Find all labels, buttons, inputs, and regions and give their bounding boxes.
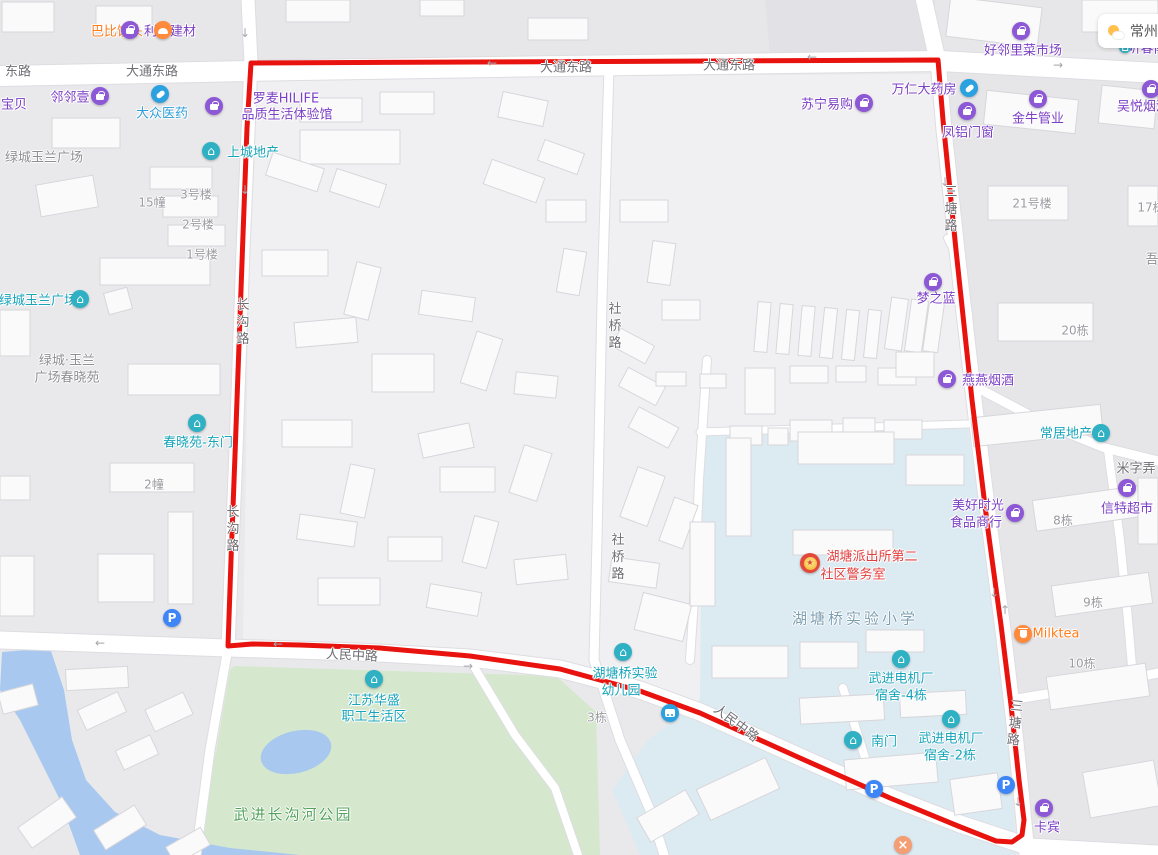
- chunxiao-east-gate-icon[interactable]: ⌂: [188, 414, 206, 432]
- building: [768, 428, 788, 445]
- bun-glyph: [158, 28, 168, 34]
- poi-label[interactable]: 职工生活区: [341, 706, 406, 725]
- south-gate-icon[interactable]: ⌂: [844, 731, 862, 749]
- building-label: 1号楼: [186, 246, 218, 263]
- building-label: 15幢: [138, 194, 165, 211]
- suning-store-icon[interactable]: [855, 94, 873, 112]
- building-label: 3号楼: [180, 186, 212, 203]
- luomai-hilife-icon[interactable]: [205, 97, 223, 115]
- road-label: 米字弄: [1116, 458, 1155, 477]
- building: [836, 366, 866, 382]
- building: [0, 556, 34, 616]
- home-glyph: ⌂: [193, 417, 201, 429]
- building: [799, 694, 884, 724]
- building: [514, 554, 568, 584]
- mengzhilan-icon[interactable]: [924, 273, 942, 291]
- police-station-icon[interactable]: ★: [800, 553, 820, 573]
- fenglv-doors-icon[interactable]: [958, 102, 976, 120]
- bag-glyph: [96, 94, 104, 100]
- area-label: 广场春晓苑: [34, 367, 99, 386]
- haolinli-market-icon[interactable]: [1012, 22, 1030, 40]
- road-label: 大通东路: [703, 55, 755, 74]
- dorm-4-icon[interactable]: ⌂: [892, 650, 910, 668]
- babi-bun-shop-icon[interactable]: [154, 21, 172, 39]
- building: [420, 0, 464, 16]
- meihao-food-store-icon[interactable]: [1006, 504, 1024, 522]
- weather-widget[interactable]: 常州: [1098, 14, 1158, 48]
- building-label: 3栋: [587, 709, 607, 726]
- poi-label[interactable]: 宿舍-2栋: [924, 745, 976, 764]
- building: [318, 578, 380, 605]
- bag-glyph: [1034, 97, 1042, 103]
- building-label: 21号楼: [1012, 195, 1051, 212]
- poi-label[interactable]: 湖塘派出所第二: [826, 546, 917, 565]
- building: [0, 476, 30, 500]
- road-label: 长沟路: [232, 298, 251, 349]
- poi-label[interactable]: 燕燕烟酒: [962, 370, 1014, 389]
- yanyan-tobacco-icon[interactable]: [938, 370, 956, 388]
- building: [800, 642, 858, 668]
- building: [52, 118, 120, 148]
- building: [380, 92, 434, 114]
- dorm-2-icon[interactable]: ⌂: [942, 710, 960, 728]
- poi-label[interactable]: 好邻里菜市场: [984, 40, 1062, 59]
- milktea-shop-icon[interactable]: [1014, 625, 1032, 643]
- kindergarten-icon[interactable]: ⌂: [614, 643, 632, 661]
- pill-glyph: [964, 83, 974, 92]
- road-label: 人民中路: [326, 643, 379, 665]
- poi-label[interactable]: 卡宾: [1034, 817, 1060, 836]
- poi-label[interactable]: Milktea: [1032, 627, 1079, 642]
- building-label: 2幢: [144, 476, 164, 493]
- kabin-store-icon[interactable]: [1035, 799, 1053, 817]
- building: [168, 512, 193, 604]
- poi-label[interactable]: 宿舍-4栋: [875, 685, 927, 704]
- bag-glyph: [1011, 511, 1019, 517]
- poi-label[interactable]: 大众医药: [136, 103, 188, 122]
- poi-label[interactable]: 南门: [871, 731, 897, 750]
- parking-2-icon[interactable]: P: [865, 780, 883, 798]
- building-label: 20栋: [1061, 322, 1088, 339]
- building: [65, 666, 128, 690]
- building: [528, 18, 588, 40]
- bus-glyph: [665, 709, 675, 717]
- building: [726, 438, 751, 536]
- weather-city: 常州: [1130, 21, 1158, 41]
- building: [866, 630, 924, 652]
- building: [282, 420, 352, 447]
- poi-label[interactable]: 吴悦烟酒: [1117, 96, 1158, 115]
- building: [620, 200, 668, 222]
- parking-3-icon[interactable]: P: [997, 776, 1015, 794]
- changju-realty-icon[interactable]: ⌂: [1092, 424, 1110, 442]
- building: [2, 2, 54, 32]
- bus-stop-icon[interactable]: [661, 704, 679, 722]
- building-label: 10栋: [1068, 655, 1095, 672]
- bag-glyph: [210, 104, 218, 110]
- bag-glyph: [1147, 87, 1155, 93]
- huasheng-residential-icon[interactable]: ⌂: [365, 670, 383, 688]
- area-label: 绿城玉兰广场: [5, 147, 83, 166]
- building: [104, 287, 133, 314]
- road-label: 长沟路: [222, 505, 241, 556]
- building: [790, 366, 828, 383]
- poi-label[interactable]: 春晓苑-东门: [163, 432, 233, 451]
- building: [115, 735, 158, 770]
- wuyue-tobacco-icon[interactable]: [1142, 80, 1158, 98]
- police-glyph: ★: [804, 557, 817, 570]
- bag-glyph: [1123, 486, 1131, 492]
- parking-1-icon[interactable]: P: [163, 609, 181, 627]
- poi-label[interactable]: 上城地产: [227, 142, 279, 161]
- building: [546, 200, 586, 222]
- road-label: 大通东路: [126, 61, 178, 80]
- building: [700, 374, 726, 388]
- area-label: 吾: [1145, 249, 1158, 268]
- building-label: 2号楼: [182, 216, 214, 233]
- building: [440, 467, 495, 492]
- home-glyph: ⌂: [76, 293, 84, 305]
- building: [128, 364, 220, 395]
- poi-label[interactable]: 邻邻壹: [50, 87, 89, 106]
- poi-label[interactable]: 幼儿园: [601, 680, 640, 699]
- close-glyph: ×: [898, 839, 909, 852]
- building: [656, 372, 686, 386]
- poi-label[interactable]: 绿城玉兰广场: [0, 290, 77, 309]
- home-glyph: ⌂: [1097, 427, 1105, 439]
- building-label: 8栋: [1053, 512, 1073, 529]
- map-canvas[interactable]: ←→←↓↓↓↓↑↓←→←东路大通东路大通东路大通东路人民中路人民中路长沟路长沟路…: [0, 0, 1158, 855]
- poi-label[interactable]: 宝贝: [1, 94, 27, 113]
- poi-label[interactable]: 苏宁易购: [801, 94, 853, 113]
- building: [514, 372, 558, 398]
- bag-glyph: [929, 280, 937, 286]
- block-slab: [765, 0, 935, 55]
- bag-glyph: [860, 101, 868, 107]
- building: [36, 175, 99, 217]
- bag-glyph: [943, 377, 951, 383]
- home-glyph: ⌂: [207, 145, 215, 157]
- cup-glyph: [1020, 630, 1027, 638]
- building: [896, 352, 934, 377]
- pill-glyph: [155, 89, 165, 98]
- building: [950, 773, 1003, 815]
- road-label: 三塘路: [940, 185, 959, 236]
- road-label: 大通东路: [540, 57, 592, 76]
- poi-label[interactable]: 万仁大药房: [891, 79, 956, 98]
- building: [906, 455, 964, 485]
- road-label: 社桥路: [607, 533, 626, 584]
- building: [798, 432, 894, 464]
- poi-label[interactable]: 品质生活体验馆: [241, 104, 332, 123]
- bag-glyph: [963, 109, 971, 115]
- closed-poi-icon[interactable]: ×: [894, 836, 912, 854]
- building: [18, 797, 77, 848]
- home-glyph: ⌂: [947, 713, 955, 725]
- building: [145, 692, 193, 732]
- building: [300, 130, 400, 164]
- building: [0, 310, 30, 356]
- building: [98, 554, 154, 602]
- park-label: 武进长沟河公园: [233, 804, 352, 825]
- building-label: 9栋: [1083, 594, 1103, 611]
- lilai-building-materials-icon[interactable]: [121, 21, 139, 39]
- poi-label[interactable]: 食品商行: [950, 512, 1002, 531]
- linlinyi-store-icon[interactable]: [91, 87, 109, 105]
- weather-sun-cloud-icon: [1108, 25, 1123, 38]
- building: [294, 317, 358, 347]
- wanren-pharmacy-icon[interactable]: [960, 79, 978, 97]
- poi-label[interactable]: 信特超市: [1101, 498, 1153, 517]
- building: [77, 692, 126, 731]
- building: [262, 250, 328, 276]
- road-label: 社桥路: [604, 302, 623, 353]
- dazhong-pharmacy-icon[interactable]: [151, 85, 169, 103]
- home-glyph: ⌂: [619, 646, 627, 658]
- shangcheng-realty-icon[interactable]: ⌂: [202, 142, 220, 160]
- building: [662, 300, 700, 320]
- home-glyph: ⌂: [849, 734, 857, 746]
- school-area-label: 湖塘桥实验小学: [792, 608, 918, 629]
- bag-glyph: [1040, 806, 1048, 812]
- bag-glyph: [1017, 29, 1025, 35]
- poi-label[interactable]: 常居地产: [1040, 423, 1092, 442]
- poi-label[interactable]: 社区警务室: [820, 564, 885, 583]
- building: [388, 537, 442, 561]
- bag-glyph: [126, 28, 134, 34]
- home-glyph: ⌂: [897, 653, 905, 665]
- lvcheng-yulan-plaza-icon[interactable]: ⌂: [71, 290, 89, 308]
- building: [745, 368, 775, 414]
- building: [690, 522, 715, 606]
- road-label: 东路: [5, 61, 31, 80]
- building-label: 17栋: [1137, 199, 1158, 216]
- building: [372, 354, 434, 392]
- xinte-supermarket-icon[interactable]: [1118, 479, 1136, 497]
- poi-label[interactable]: 金牛管业: [1012, 108, 1064, 127]
- home-glyph: ⌂: [370, 673, 378, 685]
- building: [286, 0, 350, 22]
- jinniu-pipes-icon[interactable]: [1029, 90, 1047, 108]
- building: [712, 646, 788, 678]
- poi-label[interactable]: 凤铝门窗: [942, 122, 994, 141]
